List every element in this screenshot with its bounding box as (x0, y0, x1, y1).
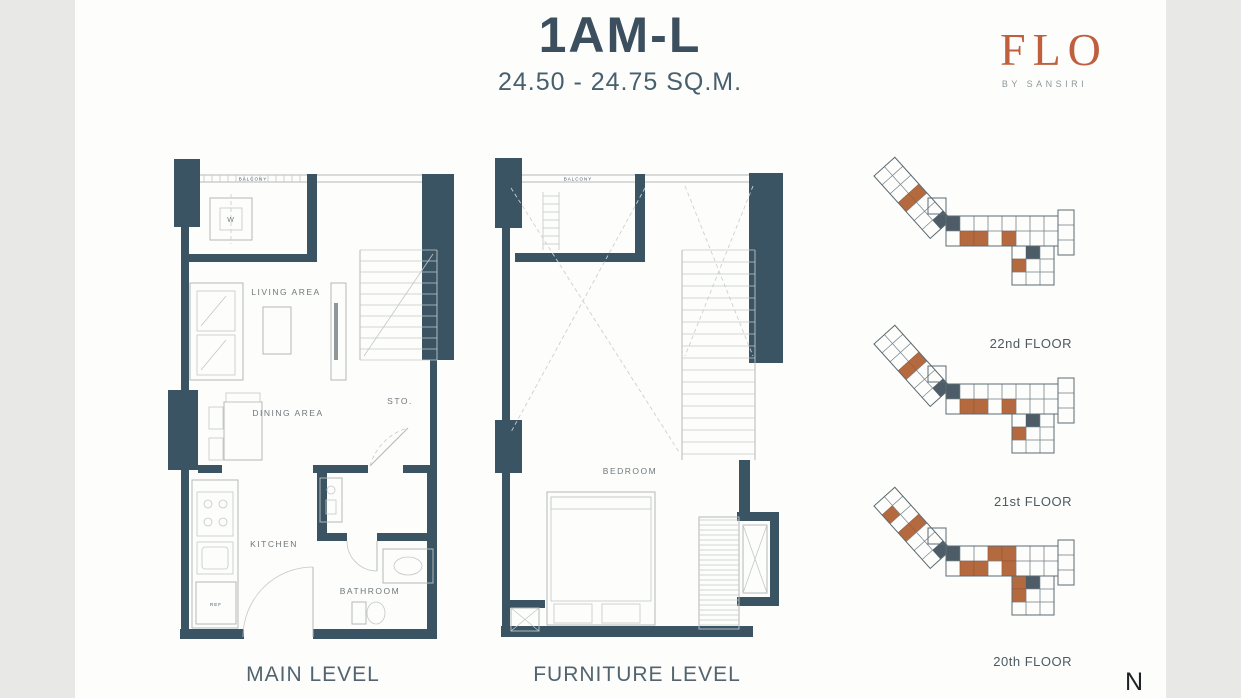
bathroom-fixtures (347, 541, 433, 624)
dining-area-label: DINING AREA (252, 408, 323, 418)
unit-title: 1AM-L (430, 6, 810, 64)
void-cross-lines (511, 186, 753, 452)
keyplan-20th-floor (862, 482, 1077, 654)
washer-label: W (227, 217, 235, 224)
furniture-level-plan: BALCONY BEDROOM (487, 150, 787, 645)
furniture-walls (495, 158, 783, 637)
kitchen-label: KITCHEN (250, 539, 298, 549)
furniture-level-caption: FURNITURE LEVEL (487, 663, 787, 687)
storage-door (370, 428, 408, 466)
bathroom-label: BATHROOM (340, 586, 400, 596)
dining-set (209, 393, 262, 460)
fridge-label: REF (210, 602, 222, 607)
keyplan-21st-floor (862, 320, 1077, 492)
floorplan-brochure: { "header": { "title": "1AM-L", "subtitl… (0, 0, 1241, 698)
main-level-plan: BALCONY W LIVING AREA DINING AREA STO. (168, 150, 458, 645)
closet (743, 525, 767, 593)
storage-label: STO. (387, 396, 413, 406)
tv-console (331, 283, 346, 380)
main-balcony-label: BALCONY (239, 177, 268, 182)
brand-tagline: BY SANSIRI (993, 79, 1093, 89)
furniture-stairs (682, 250, 755, 460)
wardrobe (699, 517, 739, 629)
coffee-table (263, 307, 291, 354)
keyplan-22nd-floor (862, 152, 1077, 324)
brand-block: FLO BY SANSIRI (993, 24, 1093, 89)
north-indicator: N (1125, 668, 1143, 697)
bed (547, 492, 655, 625)
brand-logo: FLO (993, 24, 1093, 76)
living-area-label: LIVING AREA (251, 287, 320, 297)
entry-door (243, 567, 313, 637)
keyplan-20th-label: 20th FLOOR (860, 654, 1072, 669)
unit-size: 24.50 - 24.75 SQ.M. (430, 68, 810, 97)
main-level-caption: MAIN LEVEL (168, 663, 458, 687)
sofa (190, 283, 243, 380)
bedroom-label: BEDROOM (603, 466, 657, 476)
furniture-balcony-label: BALCONY (564, 177, 593, 182)
